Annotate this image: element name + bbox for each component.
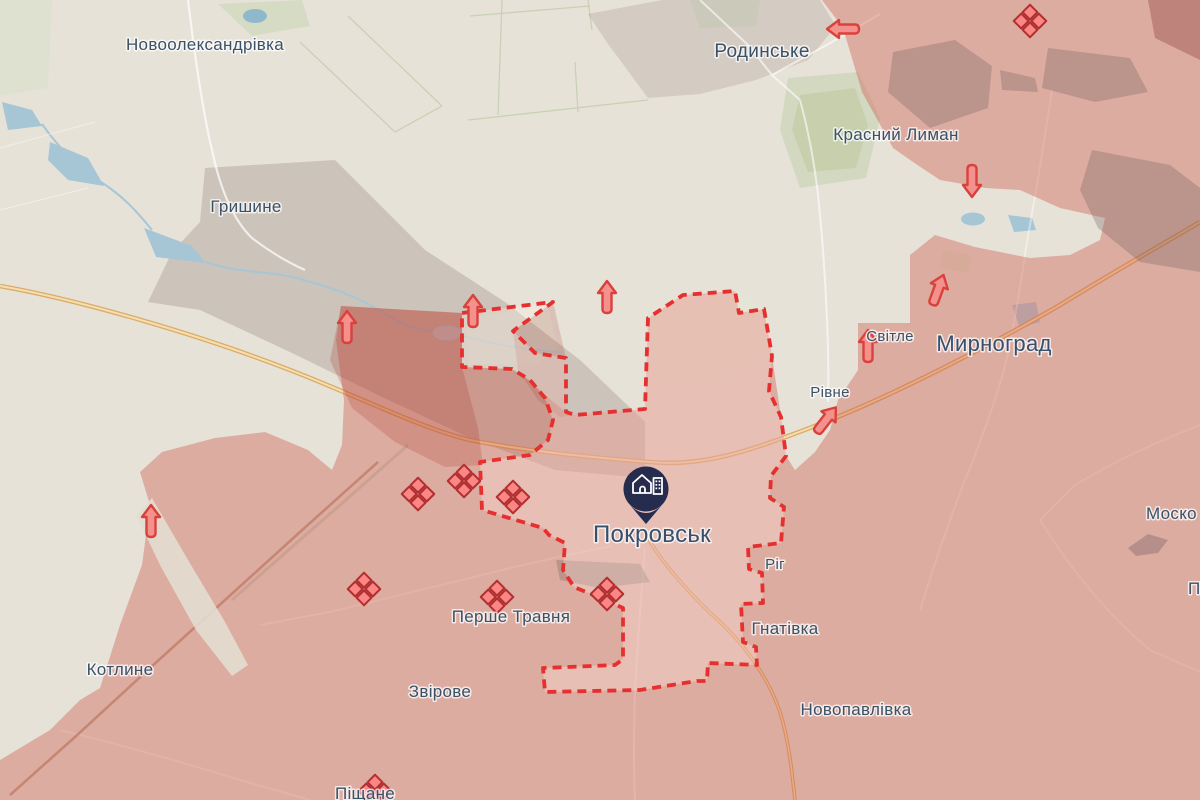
label-rodynske: Родинське (714, 41, 809, 62)
label-novooleksandrivka: Новоолександрівка (126, 35, 284, 54)
lake (243, 9, 267, 23)
field-patch (0, 0, 52, 96)
label-pokrovsk: Покровськ (593, 521, 711, 548)
label-moskovske-partial: Моско (1146, 504, 1197, 523)
label-pishchane: Піщане (335, 784, 395, 800)
label-rih: Ріг (765, 556, 785, 573)
label-pershe-travnia: Перше Травня (452, 607, 571, 626)
label-novopavlivka: Новопавлівка (801, 700, 912, 719)
frontline-map-canvas[interactable]: Новоолександрівка Гришине Родинське Крас… (0, 0, 1200, 800)
label-zvirove: Звірове (409, 682, 471, 701)
map-svg[interactable]: Новоолександрівка Гришине Родинське Крас… (0, 0, 1200, 800)
pond (961, 213, 985, 226)
label-svitle: Світле (866, 328, 914, 345)
label-rivne: Рівне (810, 384, 849, 401)
label-myrnohrad: Мирноград (936, 331, 1051, 356)
label-p-partial: П (1188, 579, 1200, 598)
label-kotlyne: Котлине (87, 660, 154, 679)
label-hryshyne: Гришине (210, 197, 281, 216)
label-hnativka: Гнатівка (752, 619, 819, 638)
label-krasnyi-lyman: Красний Лиман (833, 125, 959, 144)
